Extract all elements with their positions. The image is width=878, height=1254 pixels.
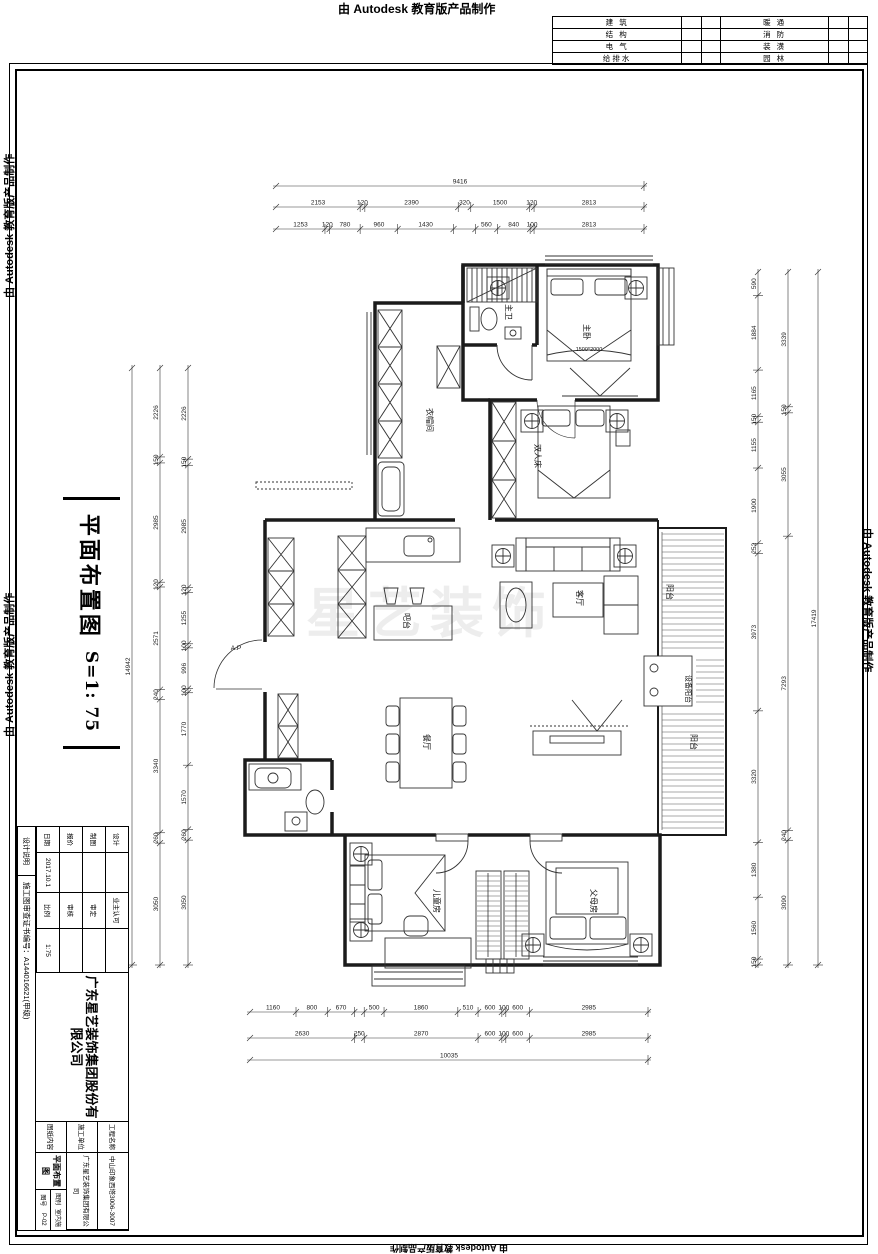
logo-watermark: 星艺装饰 — [306, 584, 554, 644]
dim-label: 3050 — [181, 895, 188, 910]
dim-label: 240 — [153, 689, 160, 700]
dimension-chain: 10035 — [247, 1053, 651, 1066]
content-label: 图纸内容 — [36, 1122, 66, 1153]
room-label: A.P — [231, 645, 241, 652]
dim-label: 100 — [498, 1005, 509, 1012]
field-value — [82, 853, 105, 893]
dim-label: 600 — [485, 1005, 496, 1012]
dim-label: 780 — [339, 222, 350, 229]
dim-label: 3973 — [751, 624, 758, 639]
dim-label: 2226 — [181, 406, 188, 421]
dim-label: 1255 — [181, 610, 188, 625]
room-label: 主卧 — [582, 324, 592, 340]
dim-label: 9416 — [453, 179, 468, 186]
dim-label: 1900 — [751, 498, 758, 513]
dim-label: 1160 — [266, 1005, 280, 1012]
dim-label: 2985 — [153, 515, 160, 530]
dim-label: 2813 — [582, 222, 597, 229]
title-block-signoff-grid: 设计 业主认可 制图 审定 报价 审核 日期 2017.10.1 比例 1:75 — [36, 827, 128, 973]
dim-label: 1500 — [493, 200, 508, 207]
dim-label: 3090 — [781, 895, 788, 910]
field-label: 设计 — [105, 827, 128, 853]
content-value: 平面布置图 — [36, 1153, 66, 1190]
dim-label: 260 — [153, 832, 160, 843]
dim-label: 3340 — [153, 758, 160, 773]
field-label: 业主认可 — [105, 893, 128, 929]
dim-label: 670 — [336, 1005, 347, 1012]
dim-label: 100 — [498, 1031, 509, 1038]
room-label: 双人床 — [533, 444, 543, 468]
project-label: 工程名称 — [98, 1122, 128, 1153]
dim-label: 100 — [181, 685, 188, 696]
dimension-chain: 5901884116515011551900252397333201380156… — [751, 269, 763, 968]
dim-label: 600 — [512, 1031, 523, 1038]
field-label: 报价 — [59, 827, 82, 853]
dim-label: 320 — [459, 200, 470, 207]
dim-label: 3050 — [153, 896, 160, 911]
dim-label: 510 — [463, 1005, 474, 1012]
dim-label: 600 — [512, 1005, 523, 1012]
dim-label: 2153 — [311, 200, 326, 207]
dim-label: 1253 — [293, 222, 308, 229]
dimension-chain: 116080067050018605106001006002985 — [247, 1005, 651, 1018]
dimension-chain: 22261502985120257124033402603050 — [153, 365, 165, 968]
title-block: 设计 业主认可 制图 审定 报价 审核 日期 2017.10.1 比例 1:75… — [17, 826, 129, 1231]
sheet-no-label: 图号 — [39, 1194, 48, 1206]
dim-label: 2985 — [582, 1031, 597, 1038]
dim-label: 2226 — [153, 405, 160, 420]
dimension-chain: 2226150298512012551009961001770157026030… — [181, 365, 193, 968]
floor-plan: 星艺装饰主卫主卧1500*2000衣帽间双人床客厅吧台餐厅阳台设备阳台阳台儿童房… — [0, 0, 878, 1254]
room-label: 设备阳台 — [684, 675, 693, 703]
dim-label: 2985 — [582, 1005, 597, 1012]
room-label: 阳台 — [689, 734, 699, 750]
sheet-no-value: P-02 — [40, 1213, 46, 1226]
dimension-chain: 2153120239032015001202813 — [273, 200, 647, 213]
dimension-chain: 263025028706001006002985 — [247, 1031, 651, 1044]
dimension-chain: 3339150305572932403090 — [781, 269, 793, 968]
field-label: 制图 — [82, 827, 105, 853]
room-label: 1500*2000 — [576, 347, 603, 353]
dim-label: 100 — [181, 640, 188, 651]
contractor-label: 施工单位 — [67, 1122, 97, 1153]
dim-label: 1165 — [751, 386, 758, 400]
field-label: 比例 — [36, 893, 59, 929]
dim-label: 2390 — [404, 200, 419, 207]
room-label: 父母房 — [589, 889, 599, 913]
dim-label: 3320 — [751, 769, 758, 784]
dim-label: 14942 — [125, 657, 132, 675]
dim-label: 10035 — [440, 1053, 458, 1060]
dimension-chain: 17419 — [811, 269, 823, 968]
dim-label: 1560 — [751, 921, 758, 936]
field-value: 1:75 — [36, 929, 59, 973]
wardrobe-rail — [488, 873, 516, 957]
dim-label: 560 — [481, 222, 492, 229]
design-note-label: 设计说明 — [18, 827, 35, 876]
field-label: 日期 — [36, 827, 59, 853]
project-value: 中山印象西塔3006-3007 — [98, 1153, 128, 1230]
dim-label: 1430 — [418, 222, 433, 229]
dim-label: 3339 — [781, 332, 788, 347]
dim-label: 1155 — [751, 438, 758, 452]
field-value: 2017.10.1 — [36, 853, 59, 893]
dim-label: 240 — [781, 830, 788, 841]
dim-label: 2985 — [181, 519, 188, 534]
dim-label: 250 — [354, 1031, 365, 1038]
field-value — [105, 853, 128, 893]
room-label: 阳台 — [665, 584, 675, 600]
contractor-value: 广东星艺装饰集团有限公司 — [67, 1153, 97, 1230]
room-label: 吧台 — [402, 613, 412, 629]
dim-label: 600 — [485, 1031, 496, 1038]
dim-label: 2813 — [582, 200, 597, 207]
dim-label: 960 — [373, 222, 384, 229]
field-value — [82, 929, 105, 973]
certificate-number: 施工图审查证书编号：A144016621(甲级) — [18, 876, 35, 1230]
dim-label: 252 — [751, 543, 758, 554]
dim-label: 590 — [751, 278, 758, 289]
room-label: 客厅 — [575, 590, 585, 606]
dim-label: 2630 — [295, 1031, 310, 1038]
room-label: 餐厅 — [422, 734, 431, 750]
dim-label: 7293 — [781, 676, 788, 691]
field-label: 审核 — [59, 893, 82, 929]
dim-label: 2571 — [153, 631, 160, 646]
dimension-chain: 9416 — [273, 179, 647, 192]
room-label: 衣帽间 — [425, 408, 435, 432]
dim-label: 1570 — [181, 790, 188, 805]
dim-label: 17419 — [811, 609, 818, 627]
company-name: 广东星艺装饰集团股份有限公司 — [36, 973, 128, 1122]
dim-label: 996 — [181, 662, 188, 673]
dim-label: 1770 — [181, 721, 188, 736]
dim-label: 840 — [508, 222, 519, 229]
dim-label: 800 — [306, 1005, 317, 1012]
dimension-chain: 125312078096014305608401002813 — [273, 222, 647, 235]
field-value — [59, 853, 82, 893]
dim-label: 260 — [181, 829, 188, 840]
dim-label: 1380 — [751, 862, 758, 877]
field-value — [105, 929, 128, 973]
dim-label: 100 — [527, 222, 538, 229]
field-label: 审定 — [82, 893, 105, 929]
wardrobe-hatch — [477, 876, 528, 951]
room-label: 主卫 — [504, 304, 514, 320]
sheet-type-value: 室内施 — [54, 1209, 63, 1227]
room-label: 儿童房 — [432, 889, 442, 913]
sheet-type-label: 图别 — [54, 1193, 63, 1205]
dim-label: 3055 — [781, 467, 788, 482]
dim-label: 500 — [369, 1005, 380, 1012]
dim-label: 1860 — [414, 1005, 429, 1012]
dim-label: 1884 — [751, 325, 758, 340]
dim-label: 2870 — [414, 1031, 429, 1038]
drawing-sheet: 由 Autodesk 教育版产品制作 由 Autodesk 教育版产品制作 由 … — [0, 0, 878, 1254]
field-value — [59, 929, 82, 973]
